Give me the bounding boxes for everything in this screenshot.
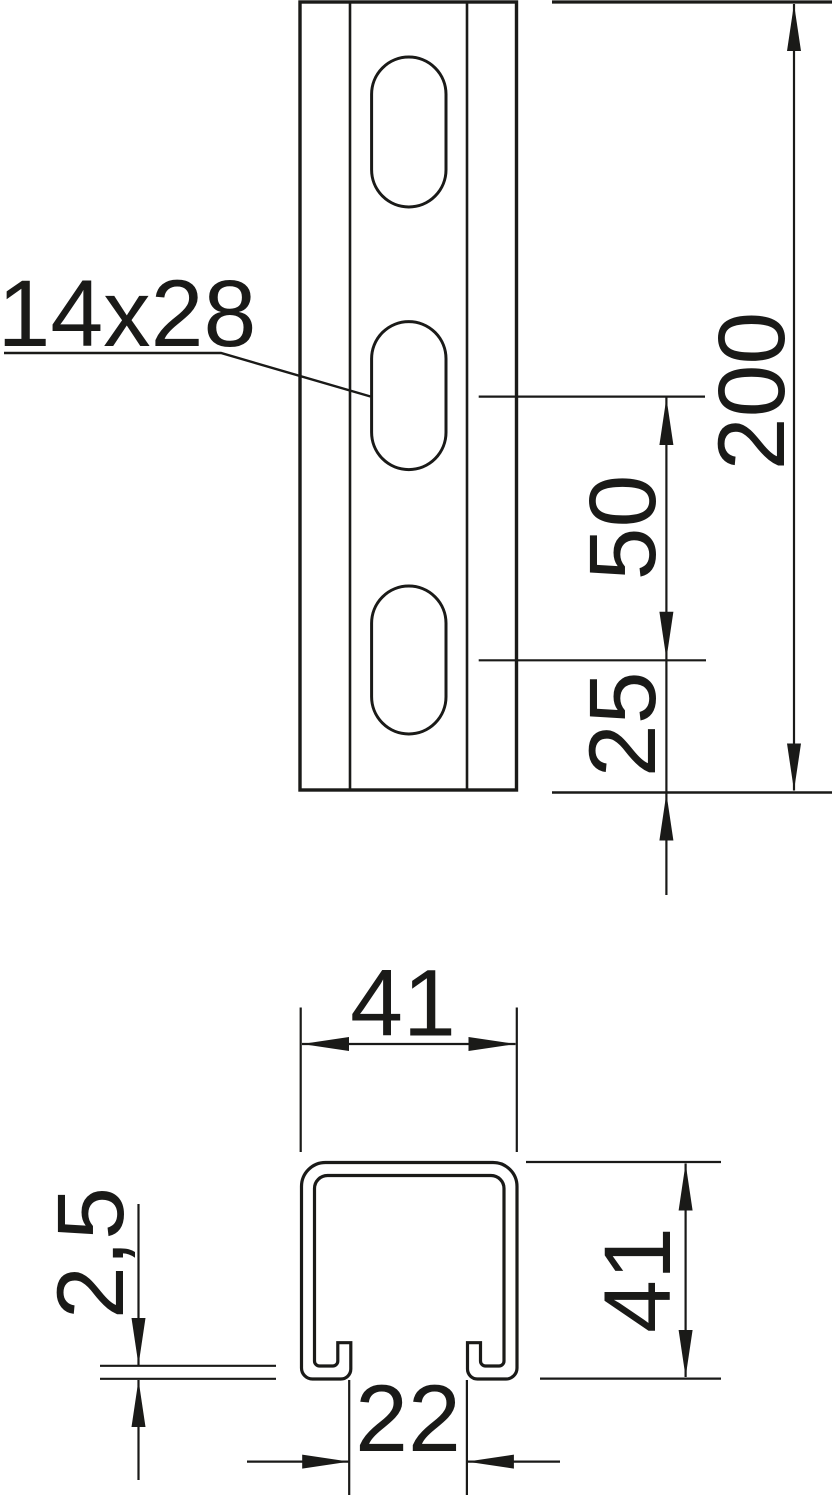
svg-text:14x28: 14x28 xyxy=(0,261,256,367)
svg-text:25: 25 xyxy=(570,671,676,777)
svg-text:41: 41 xyxy=(350,950,456,1056)
svg-text:50: 50 xyxy=(570,475,676,581)
svg-text:200: 200 xyxy=(699,312,805,471)
svg-text:41: 41 xyxy=(585,1227,691,1333)
svg-text:2,5: 2,5 xyxy=(38,1187,144,1319)
svg-text:22: 22 xyxy=(355,1366,461,1472)
